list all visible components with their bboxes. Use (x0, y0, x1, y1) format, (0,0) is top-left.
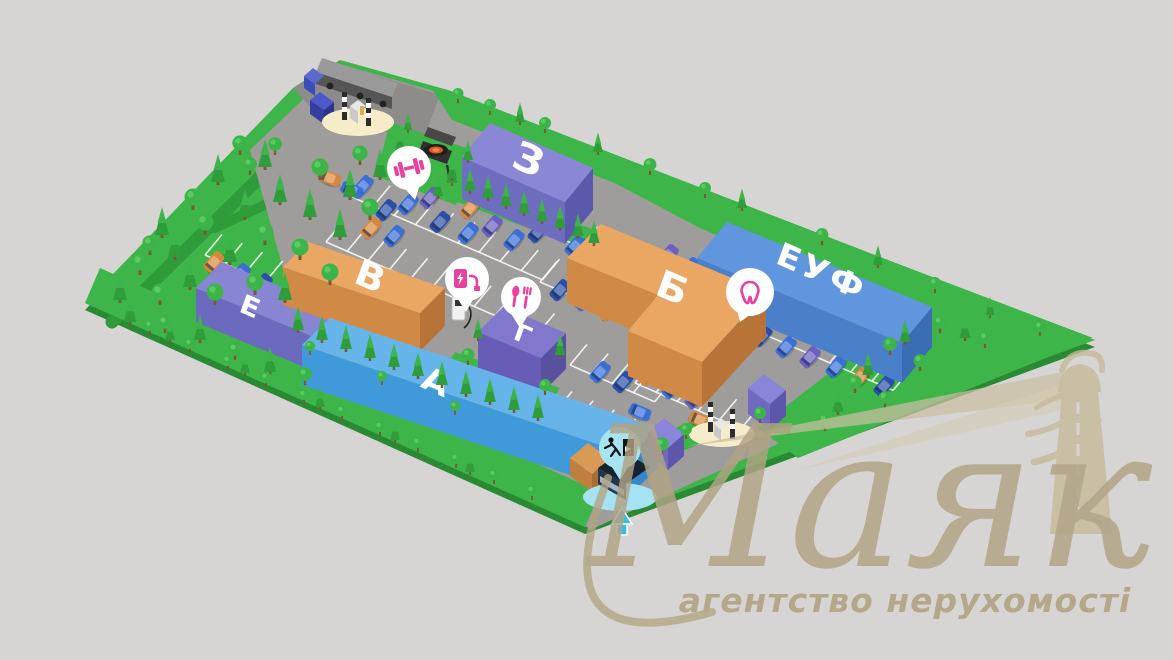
tree-crown (452, 88, 463, 99)
tree-crown (305, 341, 315, 351)
tree-crown-highlight (314, 161, 320, 167)
tree-crown-top (595, 132, 601, 143)
tree-crown (312, 159, 329, 176)
tree-crown (933, 315, 947, 329)
brand-tagline: агентство нерухомості (679, 581, 1131, 620)
tree-crown (816, 228, 829, 241)
barrier-pole-icon (342, 92, 347, 120)
tree-crown-highlight (850, 377, 855, 382)
tree-crown-highlight (300, 391, 304, 395)
tree-crown (132, 254, 149, 271)
tree-crown (152, 284, 169, 301)
tree-crown (142, 235, 157, 250)
tree-crown (298, 367, 312, 381)
tree-crown-highlight (935, 317, 940, 322)
tree-crown (699, 182, 711, 194)
tree-crown (374, 421, 385, 432)
tree-crown-highlight (981, 333, 986, 338)
tree-crown-highlight (145, 238, 151, 244)
tree-crown (197, 214, 214, 231)
tree-crown (450, 401, 460, 411)
tree-crown (644, 158, 657, 171)
tooth-icon (742, 282, 759, 303)
tree-crown-highlight (300, 369, 305, 374)
tree-crown-highlight (541, 119, 545, 123)
tree-crown-highlight (146, 322, 150, 326)
tree-crown (488, 469, 499, 480)
tree-crown-highlight (134, 256, 140, 262)
tree-crown (144, 320, 155, 331)
tree-crown-highlight (490, 471, 494, 475)
tree-crown-highlight (541, 381, 545, 385)
tree-crown (298, 389, 309, 400)
tree-crown-highlight (486, 101, 490, 105)
tree-crown-highlight (324, 266, 330, 272)
tree-crown-highlight (209, 286, 215, 292)
conifer-tree (737, 188, 747, 211)
tree-crown-highlight (249, 276, 255, 282)
tree-crown-top (214, 154, 223, 170)
tree-crown-highlight (414, 439, 418, 443)
tree-crown (484, 99, 496, 111)
tree-crown-highlight (452, 455, 456, 459)
tree-crown (883, 337, 897, 351)
tree-crown-highlight (379, 373, 383, 377)
tree-crown-highlight (235, 138, 241, 144)
tree-crown-highlight (262, 374, 266, 378)
tree-crown-highlight (245, 159, 250, 164)
tree-crown (222, 355, 233, 366)
tree-crown (412, 437, 423, 448)
tree-crown-highlight (154, 286, 160, 292)
conifer-tree (515, 102, 525, 125)
gate-guard (360, 106, 364, 115)
tree-crown (260, 372, 271, 383)
tree-crown (539, 379, 551, 391)
tree-crown (539, 117, 551, 129)
tree-crown-highlight (270, 139, 275, 144)
tree-crown (232, 135, 247, 150)
tree-crown-top (158, 207, 167, 223)
tree-crown-highlight (230, 344, 235, 349)
tree-crown-highlight (818, 230, 823, 235)
tree-crown-highlight (931, 279, 935, 283)
tree-crown (292, 239, 309, 256)
watermark: Маяк агентство нерухомості (585, 353, 1153, 623)
tree-crown (362, 199, 379, 216)
tree-crown (336, 405, 347, 416)
tree-crown-highlight (646, 160, 651, 165)
truck-wheel (327, 83, 334, 90)
tree-crown-highlight (364, 201, 370, 207)
tree-crown-highlight (916, 356, 921, 361)
truck-wheel (380, 101, 387, 108)
tree-crown-highlight (199, 216, 205, 222)
tree-crown (185, 189, 202, 206)
tree-crown (243, 157, 257, 171)
conifer-tree (593, 132, 603, 155)
tree-crown-highlight (355, 148, 361, 154)
tree-crown (914, 354, 927, 367)
tree-crown-highlight (885, 339, 890, 344)
tree-crown-top (517, 102, 523, 113)
tree-crown-highlight (701, 184, 705, 188)
tree-crown (979, 331, 992, 344)
tree-crown-highlight (160, 317, 165, 322)
tree-crown-highlight (224, 357, 228, 361)
tree-crown (247, 274, 264, 291)
tree-crown-highlight (259, 226, 265, 232)
tree-crown-highlight (464, 350, 469, 355)
tree-crown (207, 284, 224, 301)
tree-crown-highlight (376, 423, 380, 427)
tree-crown-highlight (294, 241, 300, 247)
tree-crown-highlight (307, 343, 311, 347)
tree-crown (526, 485, 537, 496)
tree-crown (462, 348, 475, 361)
tree-crown-highlight (454, 90, 458, 94)
tree-crown-highlight (528, 487, 532, 491)
brand-name: Маяк (585, 385, 1153, 613)
tree-crown-top (875, 245, 881, 256)
site-plan: З Е В ЕУФ Б Г А (0, 0, 1173, 660)
truck-wheel (357, 93, 364, 100)
tree-crown (1034, 321, 1045, 332)
grill-fire-core (433, 148, 440, 152)
tree-crown (450, 453, 461, 464)
tree-crown (929, 277, 941, 289)
tree-crown (184, 338, 195, 349)
tree-crown-highlight (187, 191, 193, 197)
tree-crown (377, 371, 387, 381)
tree-crown (322, 264, 339, 281)
badge-circle (501, 277, 541, 317)
tree-crown-top (739, 188, 745, 199)
tree-crown-highlight (338, 407, 342, 411)
tree-crown-highlight (1036, 323, 1040, 327)
tree-crown-highlight (452, 403, 456, 407)
tree-crown (228, 342, 242, 356)
tree-crown-highlight (186, 340, 190, 344)
barrier-pole-icon (366, 98, 371, 126)
tree-crown (257, 224, 274, 241)
tree-crown (352, 145, 367, 160)
tree-crown (268, 137, 282, 151)
